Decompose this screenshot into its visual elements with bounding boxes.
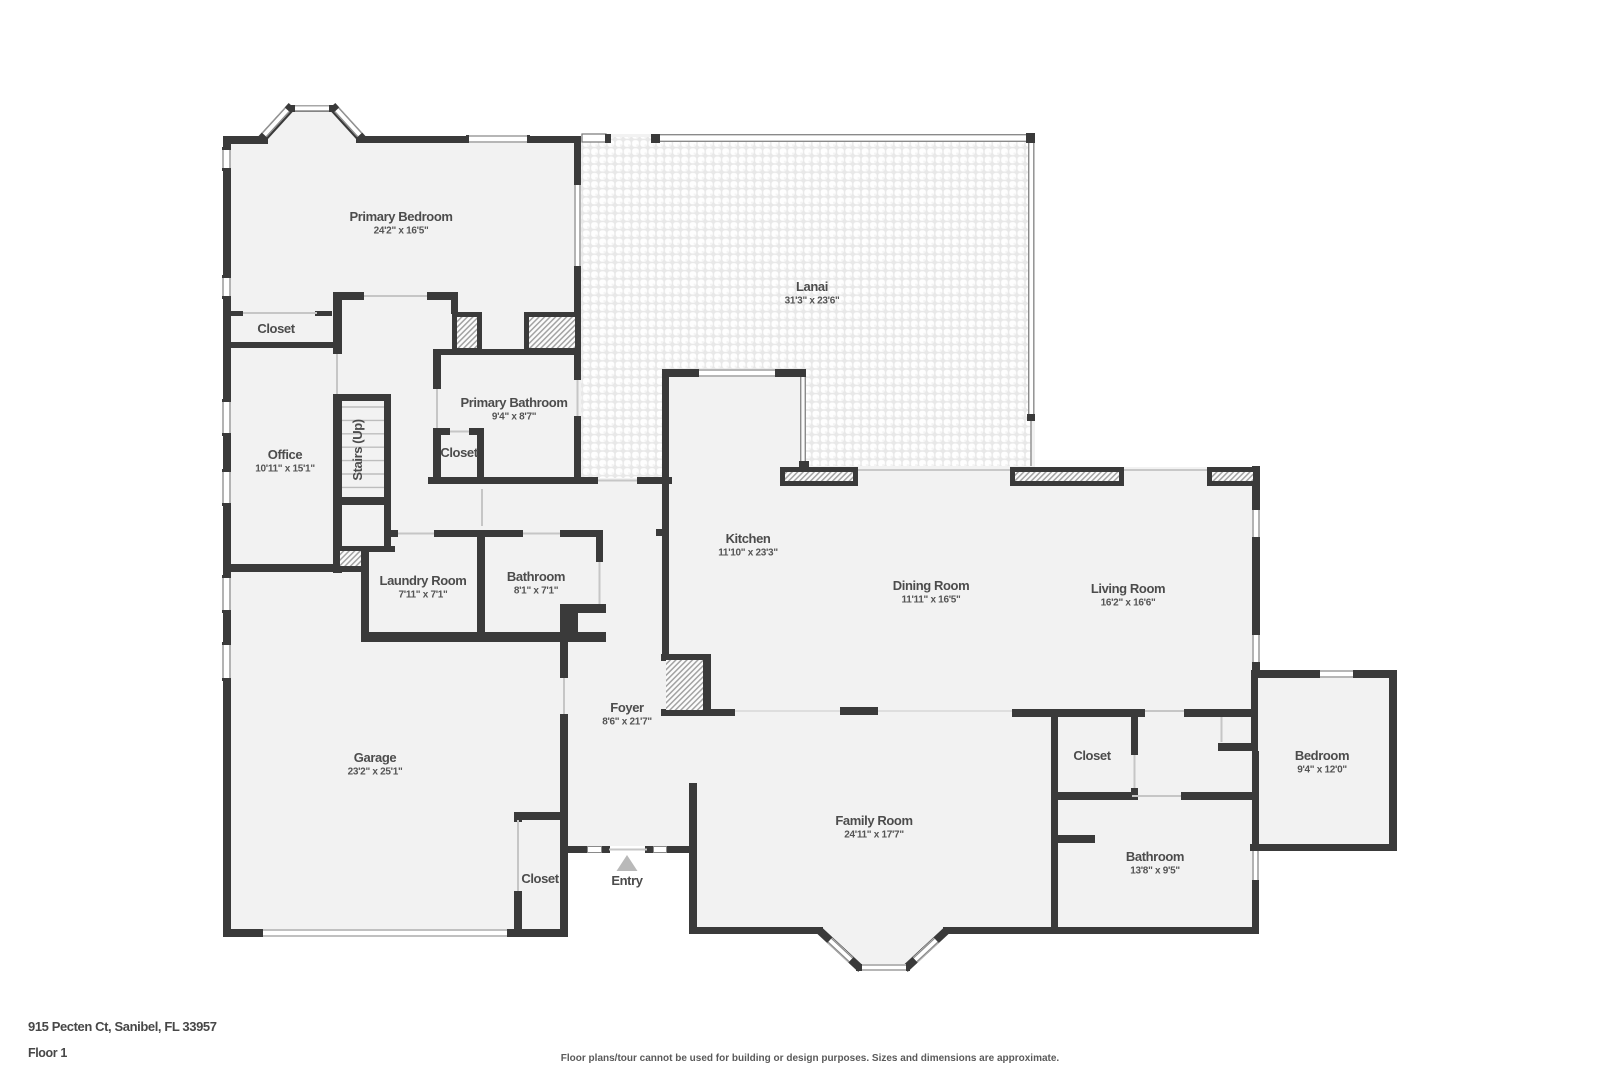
- svg-text:23'2" x 25'1": 23'2" x 25'1": [348, 767, 403, 778]
- svg-text:Foyer: Foyer: [610, 700, 644, 715]
- svg-text:Living Room: Living Room: [1091, 581, 1165, 596]
- svg-text:Dining Room: Dining Room: [893, 578, 969, 593]
- svg-text:8'6" x 21'7": 8'6" x 21'7": [602, 717, 652, 728]
- svg-text:Primary Bedroom: Primary Bedroom: [349, 209, 452, 224]
- svg-text:915 Pecten Ct, Sanibel, FL 339: 915 Pecten Ct, Sanibel, FL 33957: [28, 1019, 217, 1034]
- svg-text:Bathroom: Bathroom: [1126, 849, 1184, 864]
- svg-text:11'11" x 16'5": 11'11" x 16'5": [902, 595, 962, 606]
- svg-text:31'3" x 23'6": 31'3" x 23'6": [785, 296, 840, 307]
- svg-text:Floor plans/tour cannot be use: Floor plans/tour cannot be used for buil…: [561, 1053, 1060, 1064]
- svg-text:Primary Bathroom: Primary Bathroom: [460, 395, 567, 410]
- svg-text:24'11" x 17'7": 24'11" x 17'7": [844, 830, 904, 841]
- svg-text:8'1" x 7'1": 8'1" x 7'1": [514, 586, 559, 597]
- svg-text:10'11" x 15'1": 10'11" x 15'1": [255, 464, 315, 475]
- svg-text:Bathroom: Bathroom: [507, 569, 565, 584]
- svg-text:Bedroom: Bedroom: [1295, 748, 1349, 763]
- svg-text:11'10" x 23'3": 11'10" x 23'3": [718, 548, 778, 559]
- svg-text:24'2" x 16'5": 24'2" x 16'5": [374, 226, 429, 237]
- svg-text:Closet: Closet: [257, 321, 295, 336]
- svg-text:13'8" x 9'5": 13'8" x 9'5": [1130, 866, 1180, 877]
- svg-text:9'4" x 12'0": 9'4" x 12'0": [1297, 765, 1347, 776]
- svg-text:Lanai: Lanai: [796, 279, 828, 294]
- svg-text:Kitchen: Kitchen: [726, 531, 771, 546]
- svg-text:Closet: Closet: [521, 871, 559, 886]
- svg-text:7'11" x 7'1": 7'11" x 7'1": [398, 590, 448, 601]
- svg-text:Laundry Room: Laundry Room: [380, 573, 467, 588]
- svg-text:Family Room: Family Room: [835, 813, 912, 828]
- svg-text:9'4" x 8'7": 9'4" x 8'7": [492, 412, 537, 423]
- svg-text:Office: Office: [268, 447, 303, 462]
- svg-text:Stairs (Up): Stairs (Up): [350, 419, 365, 480]
- svg-text:Garage: Garage: [354, 750, 397, 765]
- svg-text:Entry: Entry: [611, 873, 643, 888]
- svg-text:16'2" x 16'6": 16'2" x 16'6": [1101, 598, 1156, 609]
- svg-text:Closet: Closet: [1073, 748, 1111, 763]
- svg-text:Closet: Closet: [440, 445, 478, 460]
- svg-text:Floor 1: Floor 1: [28, 1046, 67, 1060]
